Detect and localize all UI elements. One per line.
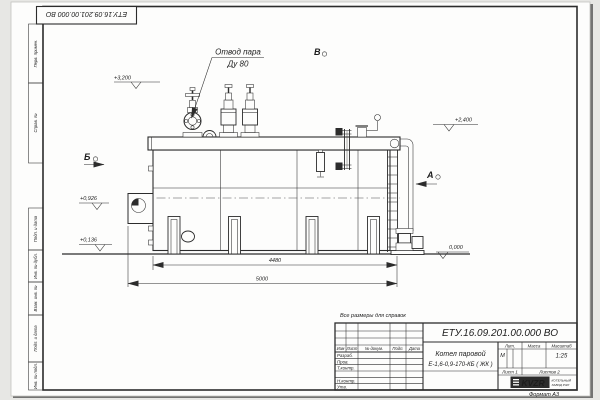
nozzle-stub xyxy=(149,240,154,245)
tb-col: Дата xyxy=(408,346,421,351)
dimension-value: 5000 xyxy=(256,277,269,283)
corner-stamp-doc-number: ЕТУ.16.09.201.00.000 ВО xyxy=(45,10,127,17)
callout-size: Ду 80 xyxy=(227,60,249,69)
margin-label: Перв. примен. xyxy=(33,40,38,68)
scale-header: Масштаб xyxy=(551,344,572,349)
mass-header: Масса xyxy=(528,344,541,349)
scale-value: 1:25 xyxy=(556,354,568,360)
sheets-total: Листов 2 xyxy=(538,370,560,375)
margin-label: Инв. № дубл. xyxy=(33,253,38,279)
format-note: Формат А3 xyxy=(529,392,560,398)
margin-label: Подп. и дата xyxy=(33,325,38,352)
sheet-number: Лист 1 xyxy=(501,370,518,375)
callout-name: Отвод пара xyxy=(215,48,261,57)
steam-header xyxy=(148,137,400,150)
logo-bars-icon xyxy=(513,379,519,380)
elevation-label: +3,200 xyxy=(114,76,132,82)
corner-stamp: ЕТУ.16.09.201.00.000 ВО xyxy=(37,7,137,25)
view-letter: А xyxy=(426,170,434,180)
blueprint-sheet: ЕТУ.16.09.201.00.000 ВО Перв. примен. Сп… xyxy=(0,0,600,400)
tb-col: № докум. xyxy=(365,346,383,351)
burner xyxy=(128,194,153,224)
tb-row: Утв. xyxy=(337,385,347,390)
title-doc-number: ЕТУ.16.09.201.00.000 ВО xyxy=(442,328,558,339)
view-letter: Б xyxy=(84,152,91,162)
reference-note: Все размеры для справок xyxy=(340,313,406,319)
company-name: ЗАВОД РЭП xyxy=(552,383,571,387)
tb-row: Пров. xyxy=(337,359,349,364)
elevation-label: +2,400 xyxy=(455,118,473,124)
elevation-label: +0,926 xyxy=(80,196,98,202)
tb-row: Разраб. xyxy=(337,353,353,358)
tb-row: Н.контр. xyxy=(337,378,356,383)
nozzle-stub xyxy=(149,226,154,231)
lit-value: М xyxy=(500,353,505,359)
logo-text: KVZR xyxy=(522,378,546,388)
elevation-label: 0,000 xyxy=(449,245,464,251)
product-code: Е-1,6-0,9-170-КБ ( ЖК ) xyxy=(428,362,492,368)
elevation-label: +0,136 xyxy=(80,238,98,244)
view-letter: В xyxy=(314,47,321,57)
manhole-oval xyxy=(182,231,195,242)
margin-label: Инв. № подл. xyxy=(33,363,38,389)
margin-label: Справ. № xyxy=(33,113,38,132)
margin-label: Подп. и дата xyxy=(33,215,38,242)
nozzle-stub xyxy=(149,166,154,171)
pressure-gauge-icon xyxy=(375,115,381,121)
tb-col: Изм xyxy=(337,346,345,351)
drawing-viewer: ЕТУ.16.09.201.00.000 ВО Перв. примен. Сп… xyxy=(0,0,600,400)
dimension-value: 4480 xyxy=(269,258,282,264)
company-name: КОТЕЛЬНЫЙ xyxy=(552,379,572,383)
kvzr-logo: KVZR КОТЕЛЬНЫЙ ЗАВОД РЭП xyxy=(511,377,572,389)
tb-col: Подп. xyxy=(392,346,403,351)
end-nozzle xyxy=(390,139,399,148)
tb-col: Лист xyxy=(346,346,358,351)
margin-label: Взам. инв. № xyxy=(33,285,38,311)
lit-header: Лит. xyxy=(504,344,515,349)
product-name: Котел паровой xyxy=(435,350,485,358)
tb-row: Т.контр. xyxy=(337,366,355,371)
